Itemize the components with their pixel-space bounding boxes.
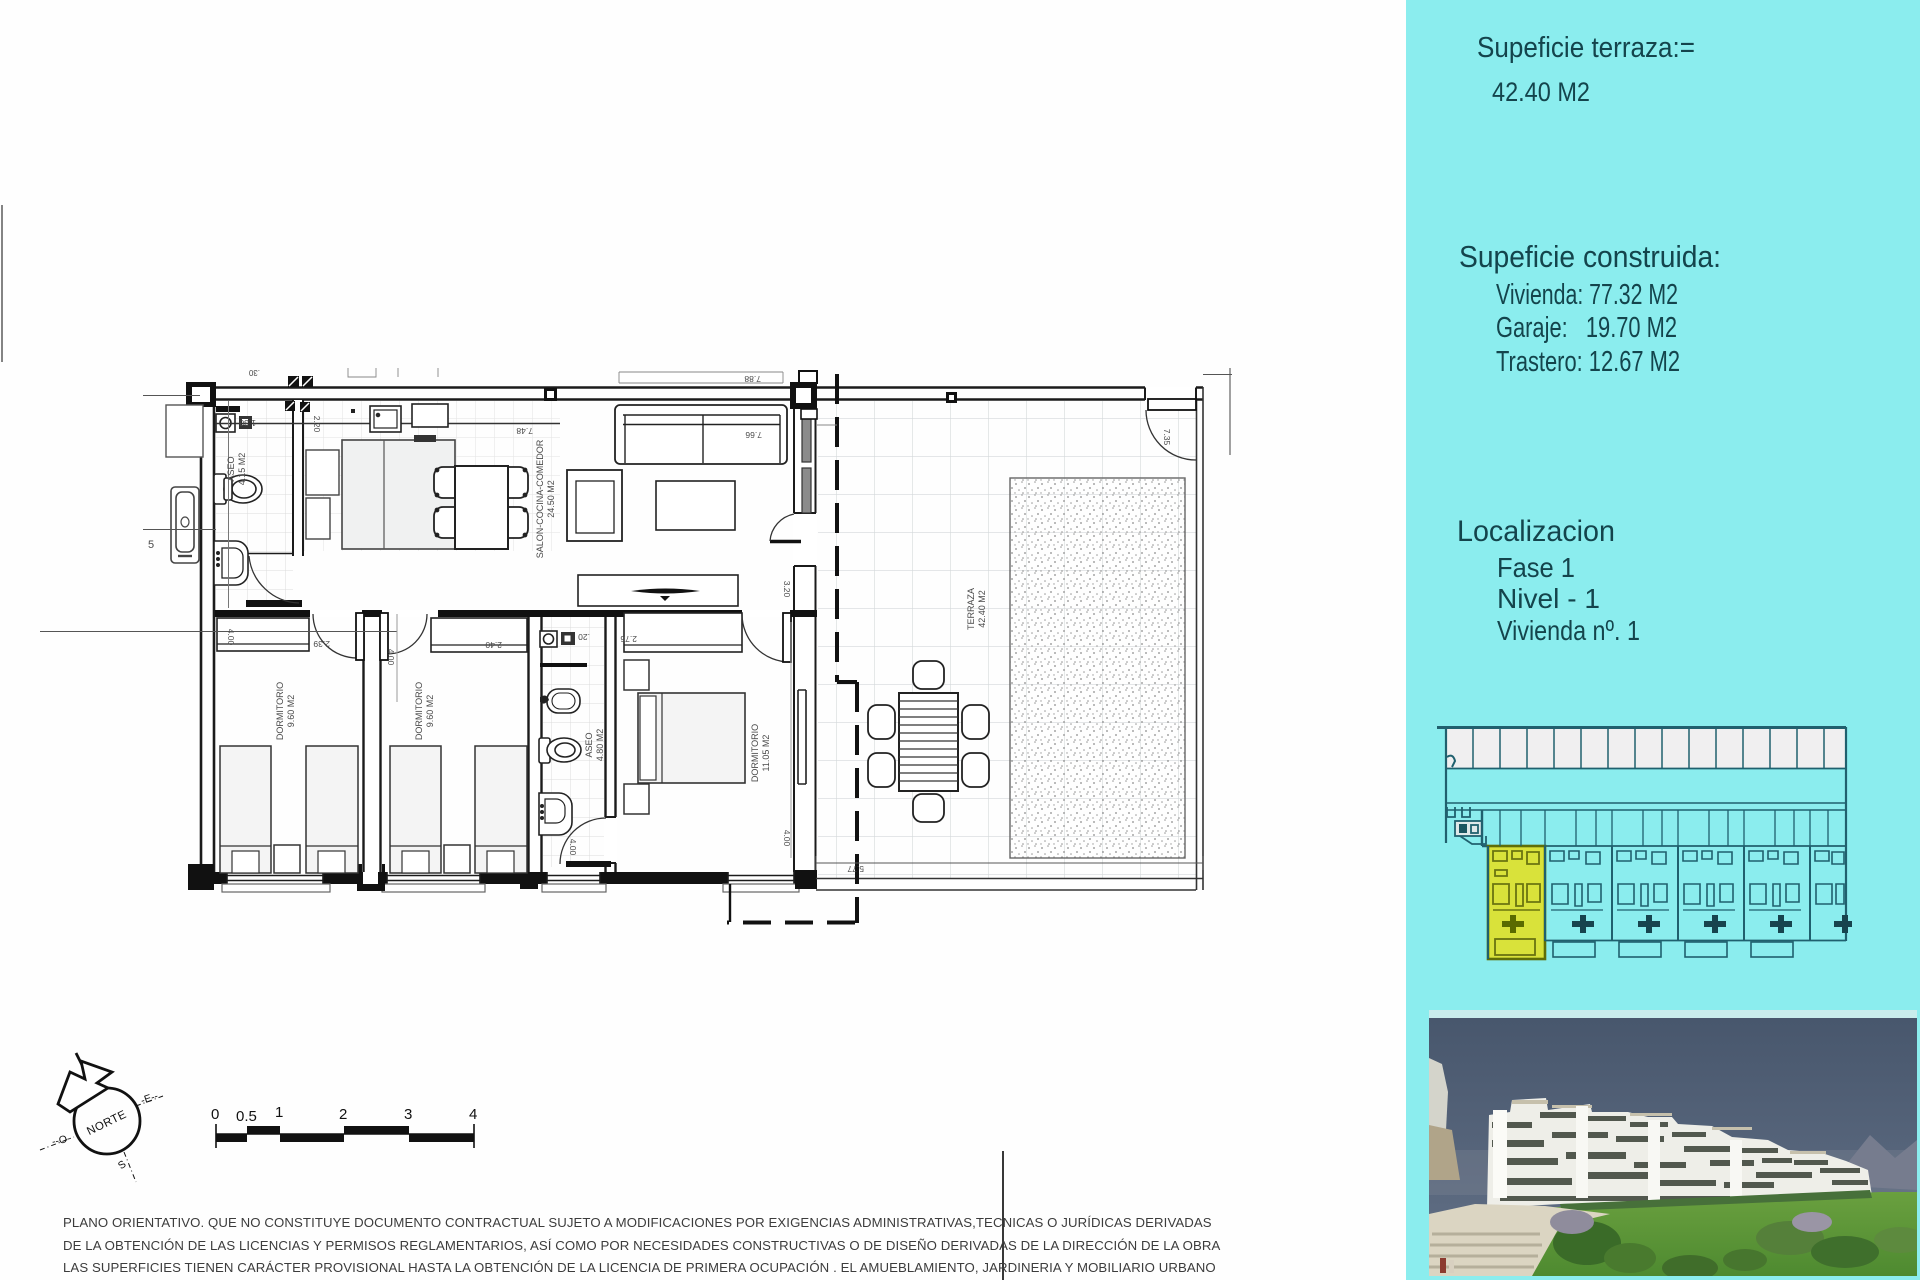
svg-text:7.88: 7.88 [744, 374, 761, 384]
svg-text:2: 2 [339, 1106, 347, 1123]
svg-text:0.5: 0.5 [236, 1108, 257, 1125]
svg-text:Vivienda: 77.32 M2: Vivienda: 77.32 M2 [1496, 279, 1678, 311]
svg-text:DORMITORIO: DORMITORIO [750, 724, 760, 782]
svg-text:0: 0 [211, 1106, 219, 1123]
svg-text:4.15 M2: 4.15 M2 [237, 453, 247, 486]
svg-text:4.00: 4.00 [386, 649, 396, 666]
svg-text:PLANO ORIENTATIVO. QUE NO CONS: PLANO ORIENTATIVO. QUE NO CONSTITUYE DOC… [63, 1215, 1212, 1230]
svg-text:1.30: 1.30 [239, 418, 256, 428]
svg-text:5: 5 [148, 539, 154, 551]
svg-text:5.77: 5.77 [847, 864, 864, 874]
svg-text:TERRAZA: TERRAZA [966, 588, 976, 630]
svg-text:4.00: 4.00 [568, 839, 578, 856]
svg-text:7.66: 7.66 [745, 430, 762, 440]
svg-text:4.00: 4.00 [226, 629, 236, 646]
svg-text:2.39: 2.39 [313, 639, 330, 649]
svg-text:.20: .20 [578, 632, 590, 642]
svg-text:Localizacion: Localizacion [1457, 515, 1615, 548]
svg-text:7.48: 7.48 [516, 426, 533, 436]
svg-text:Fase 1: Fase 1 [1497, 552, 1575, 583]
svg-text:4.00: 4.00 [782, 830, 792, 847]
svg-text:Supeficie terraza:=: Supeficie terraza:= [1477, 32, 1695, 64]
svg-text:2.40: 2.40 [485, 640, 502, 650]
svg-text:LAS SUPERFICIES TIENEN CARÁCTE: LAS SUPERFICIES TIENEN CARÁCTER PROVISIO… [63, 1260, 1216, 1275]
svg-text:DORMITORIO: DORMITORIO [414, 682, 424, 740]
svg-text:Nivel - 1: Nivel - 1 [1497, 583, 1600, 614]
svg-text:Garaje: 19.70 M2: Garaje: 19.70 M2 [1496, 312, 1677, 344]
svg-text:4: 4 [469, 1106, 477, 1123]
svg-text:3: 3 [404, 1106, 412, 1123]
svg-text:7.35: 7.35 [1162, 429, 1172, 446]
svg-text:ASEO: ASEO [584, 732, 594, 757]
svg-text:9.60 M2: 9.60 M2 [286, 695, 296, 728]
svg-text:2.76: 2.76 [620, 634, 637, 644]
svg-text:24.50 M2: 24.50 M2 [546, 480, 556, 518]
svg-text:3.20: 3.20 [782, 581, 792, 598]
svg-text:SALON-COCINA-COMEDOR: SALON-COCINA-COMEDOR [535, 439, 545, 558]
svg-text:Vivienda nº. 1: Vivienda nº. 1 [1497, 615, 1640, 646]
svg-text:DORMITORIO: DORMITORIO [275, 682, 285, 740]
svg-text:42.40 M2: 42.40 M2 [1492, 77, 1590, 107]
svg-text:9.60 M2: 9.60 M2 [425, 695, 435, 728]
svg-text:4.80 M2: 4.80 M2 [595, 729, 605, 762]
svg-text:11.05 M2: 11.05 M2 [761, 735, 771, 772]
svg-text:42.40 M2: 42.40 M2 [977, 590, 987, 628]
svg-text:2.20: 2.20 [312, 416, 322, 433]
svg-text:Trastero: 12.67 M2: Trastero: 12.67 M2 [1496, 346, 1680, 378]
svg-text:1: 1 [275, 1104, 283, 1121]
svg-text:ASEO: ASEO [226, 456, 236, 481]
svg-text:Supeficie construida:: Supeficie construida: [1459, 239, 1721, 274]
svg-text:.30: .30 [248, 368, 260, 377]
svg-text:DE LA OBTENCIÓN DE LAS LICENCI: DE LA OBTENCIÓN DE LAS LICENCIAS Y PERMI… [63, 1238, 1220, 1253]
